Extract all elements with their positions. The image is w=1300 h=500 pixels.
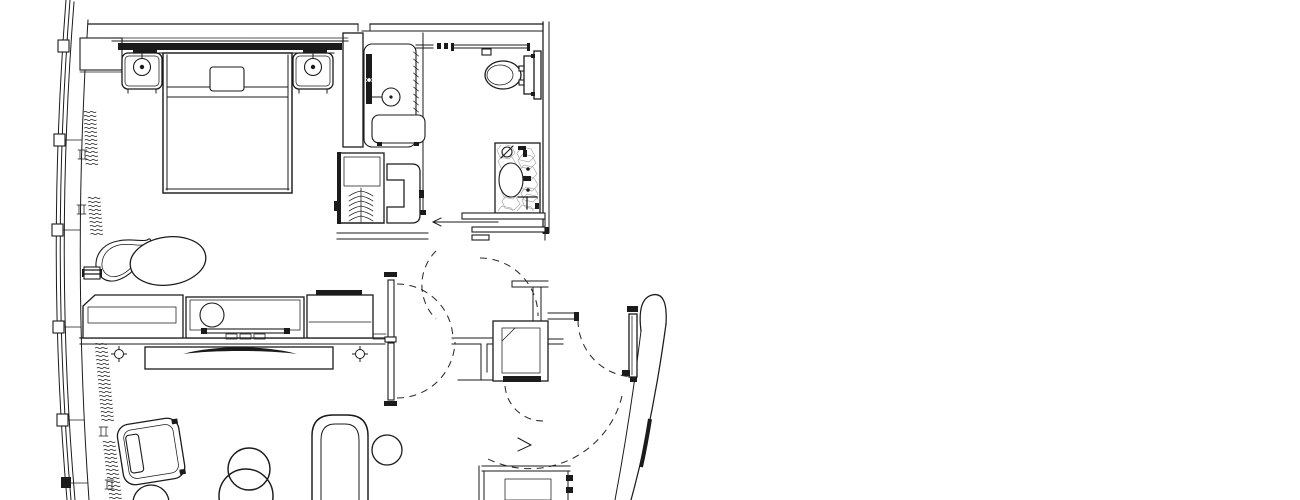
sink-basin — [499, 163, 523, 197]
service-shaft — [493, 321, 548, 382]
towel-bar-bracket — [482, 49, 491, 55]
pillow — [210, 67, 244, 91]
floor-plan-drawing — [0, 0, 1300, 500]
robe-hook — [444, 43, 448, 49]
armchair — [116, 417, 187, 487]
entry-door-jamb — [574, 312, 579, 321]
toilet-tank — [524, 56, 535, 94]
chaise-side-table — [372, 435, 402, 465]
wall-vent-block — [82, 267, 102, 279]
closet-door-panel — [337, 152, 341, 224]
desk — [83, 295, 183, 338]
door-leaf-upper — [388, 280, 394, 337]
faucet — [523, 176, 531, 181]
door-leaf-lower — [388, 343, 394, 400]
closet-door-pull — [334, 201, 340, 211]
tv-console — [145, 347, 333, 369]
bottle-tray — [203, 329, 287, 333]
door-panel — [462, 213, 545, 219]
shower-bench — [372, 115, 425, 146]
robe-hook — [437, 43, 441, 49]
minibar-cabinet — [186, 297, 304, 339]
meeting-stile — [385, 337, 396, 342]
ice-bucket — [200, 303, 224, 327]
threshold-bar — [503, 376, 541, 382]
column-enclosure — [80, 38, 122, 70]
shower-control-bar — [366, 54, 372, 104]
vanity — [495, 143, 540, 221]
closet — [334, 152, 384, 224]
floor-plan-canvas: Hotel guest room suite floor plan, black… — [0, 0, 1300, 500]
bedroom-bathroom-wall — [343, 33, 363, 147]
entry-door-leaf — [629, 314, 637, 377]
headboard — [118, 43, 342, 50]
mullion-solid — [61, 477, 71, 488]
